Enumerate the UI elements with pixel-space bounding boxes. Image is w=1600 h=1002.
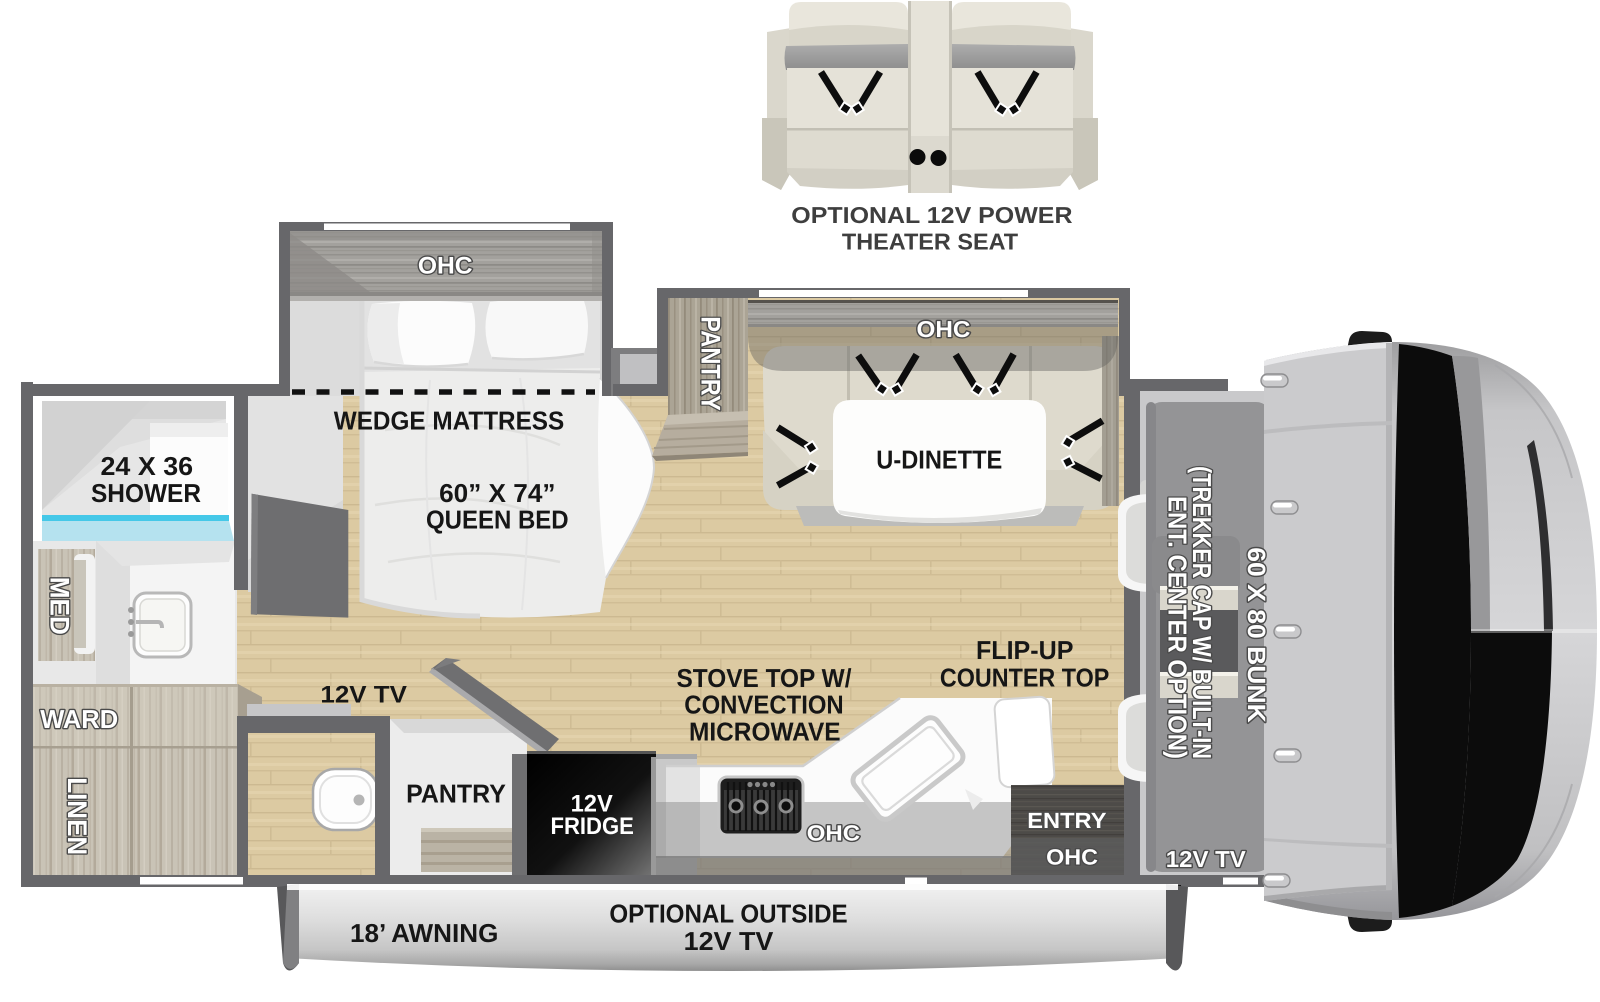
svg-text:LINEN: LINEN bbox=[62, 777, 92, 855]
svg-text:OPTIONAL 12V POWER: OPTIONAL 12V POWER bbox=[791, 202, 1073, 228]
svg-text:12V TV: 12V TV bbox=[1166, 846, 1247, 872]
svg-text:OPTIONAL OUTSIDE: OPTIONAL OUTSIDE bbox=[609, 899, 847, 929]
svg-text:OHC: OHC bbox=[1046, 845, 1098, 870]
svg-text:U-DINETTE: U-DINETTE bbox=[876, 444, 1002, 474]
svg-text:QUEEN BED: QUEEN BED bbox=[426, 504, 569, 534]
svg-text:ENTRY: ENTRY bbox=[1027, 808, 1107, 833]
svg-text:FLIP-UP: FLIP-UP bbox=[976, 635, 1074, 665]
svg-text:THEATER SEAT: THEATER SEAT bbox=[842, 228, 1018, 254]
svg-text:18’ AWNING: 18’ AWNING bbox=[350, 918, 498, 948]
svg-text:OHC: OHC bbox=[807, 821, 860, 846]
svg-text:PANTRY: PANTRY bbox=[406, 778, 506, 808]
svg-text:12V TV: 12V TV bbox=[684, 926, 774, 956]
svg-text:COUNTER TOP: COUNTER TOP bbox=[940, 662, 1109, 692]
svg-text:24 X 36: 24 X 36 bbox=[101, 451, 194, 481]
svg-text:MICROWAVE: MICROWAVE bbox=[689, 716, 841, 746]
svg-text:MED: MED bbox=[44, 577, 74, 635]
svg-text:PANTRY: PANTRY bbox=[696, 316, 726, 410]
svg-text:STOVE TOP W/: STOVE TOP W/ bbox=[677, 663, 852, 693]
svg-text:60 X 80 BUNK: 60 X 80 BUNK bbox=[1242, 547, 1270, 723]
svg-text:SHOWER: SHOWER bbox=[91, 478, 201, 508]
svg-text:ENT. CENTER OPTION): ENT. CENTER OPTION) bbox=[1163, 496, 1193, 759]
svg-text:12V TV: 12V TV bbox=[320, 682, 407, 709]
svg-text:OHC: OHC bbox=[418, 252, 473, 279]
svg-text:WEDGE MATTRESS: WEDGE MATTRESS bbox=[334, 406, 565, 436]
svg-text:CONVECTION: CONVECTION bbox=[684, 690, 843, 720]
svg-text:WARD: WARD bbox=[40, 704, 118, 734]
svg-text:OHC: OHC bbox=[917, 316, 971, 342]
svg-text:FRIDGE: FRIDGE bbox=[551, 813, 634, 840]
